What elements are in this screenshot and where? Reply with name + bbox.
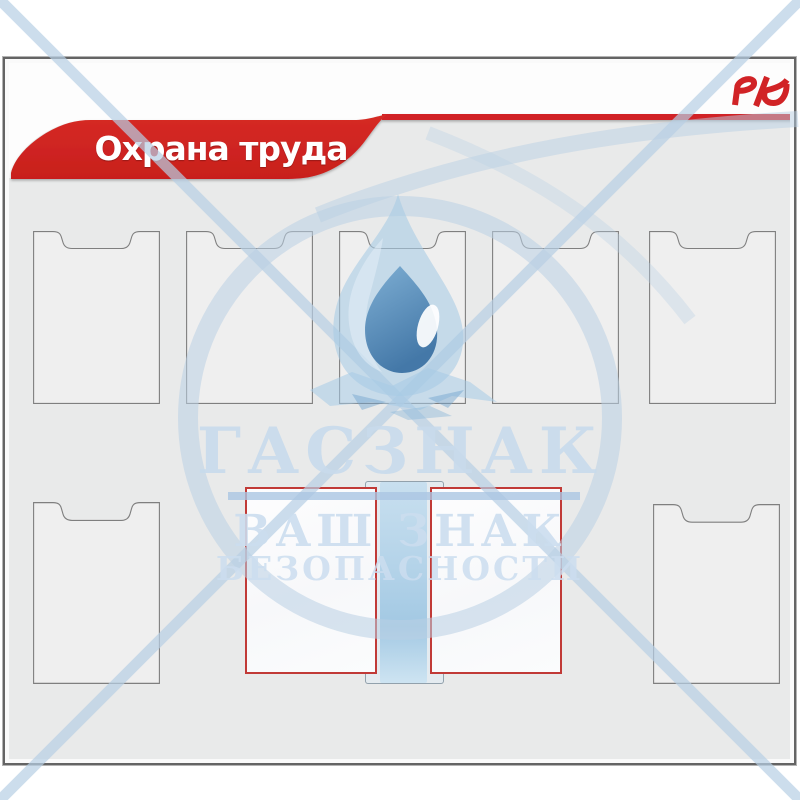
information-stand-board: Охрана труда (3, 57, 796, 765)
document-pocket (339, 231, 466, 404)
document-pocket (649, 231, 776, 404)
document-pocket (653, 504, 780, 684)
document-pocket (33, 502, 160, 684)
rzd-logo-icon (727, 73, 790, 111)
board-content: Охрана труда (9, 63, 790, 759)
board-title: Охрана труда (93, 129, 349, 169)
document-pocket (33, 231, 160, 404)
flip-system-hinge-core (380, 482, 427, 683)
header-red-rule (382, 114, 790, 120)
product-image: Охрана труда (0, 0, 800, 800)
flip-frame-panel (430, 487, 562, 674)
document-pocket (186, 231, 313, 404)
flip-frame-panel (245, 487, 377, 674)
document-pocket (492, 231, 619, 404)
